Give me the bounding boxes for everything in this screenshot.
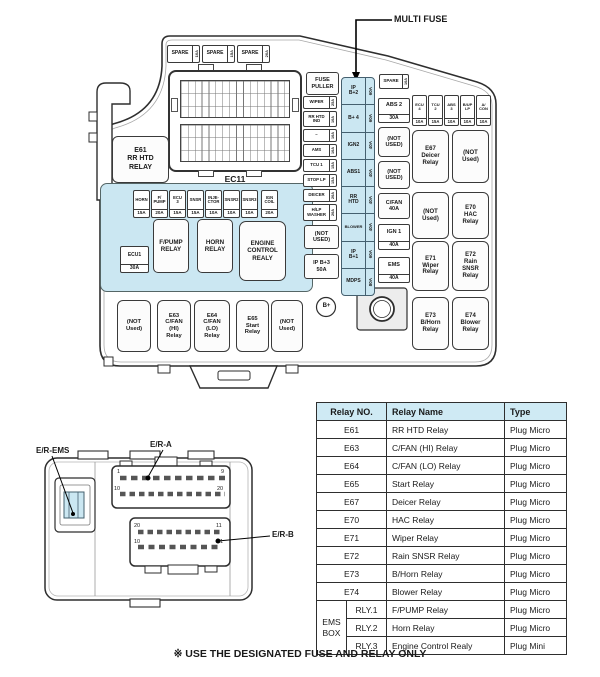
fuse-injector: INJE- CTOR 10A — [205, 190, 222, 218]
table-row: E67Deicer RelayPlug Micro — [317, 493, 567, 511]
table-row: E70HAC RelayPlug Micro — [317, 511, 567, 529]
table-row-ems-1: EMS BOX RLY.1F/PUMP RelayPlug Micro — [317, 601, 567, 619]
relay-e65-start: E65 Start Relay — [236, 300, 269, 352]
fuse-ign-coil: IGN COIL 20A — [261, 190, 278, 218]
fuse-bup-lp: B/UP LP 10A — [460, 95, 475, 126]
fuse-not-used-left: (NOT USED) — [304, 225, 339, 249]
multi-fuse-b4: B+ 460A — [342, 105, 374, 132]
fuse-abs3: ABS 3 10A — [444, 95, 459, 126]
relay-e74-blower: E74 Blower Relay — [452, 297, 489, 350]
b-plus-terminal-label: B+ — [317, 303, 336, 309]
fuse-acon: A/ CON 10A — [476, 95, 491, 126]
col-relay-name: Relay Name — [387, 403, 505, 421]
relay-table: Relay NO. Relay Name Type E61RR HTD Rela… — [316, 402, 567, 655]
fuse-fpump: F/ PUMP 20A — [151, 190, 168, 218]
table-row: E72Rain SNSR RelayPlug Micro — [317, 547, 567, 565]
table-row: E63C/FAN (HI) RelayPlug Micro — [317, 439, 567, 457]
fuse-not-used-mid-2: (NOT USED) — [378, 161, 410, 189]
multi-fuse-rr-htd: RR HTD40A — [342, 187, 374, 214]
table-row: E65Start RelayPlug Micro — [317, 475, 567, 493]
spare-fuse-3: SPARE 20A — [237, 45, 270, 63]
fuse-spare-mid: SPARE 10A — [379, 74, 409, 89]
fuse-abs2: ABS 2 30A — [378, 98, 410, 123]
relay-e70-hac: E70 HAC Relay — [452, 192, 489, 239]
fuse-ems: EMS 40A — [378, 257, 410, 283]
footer-note: ※ USE THE DESIGNATED FUSE AND RELAY ONLY — [0, 648, 600, 660]
er-ems-label: E/R-EMS — [36, 446, 69, 455]
fuse-hlp-washer: H/LP WASHER 20A — [303, 204, 337, 221]
fuse-horn: HORN 15A — [133, 190, 150, 218]
relay-not-used-bottom-2: (NOT Used) — [271, 300, 303, 352]
er-b-pin-20: 20 — [134, 524, 140, 530]
table-row: E64C/FAN (LO) RelayPlug Micro — [317, 457, 567, 475]
table-row-ems-2: RLY.2Horn RelayPlug Micro — [317, 619, 567, 637]
er-a-pin-9: 9 — [221, 470, 224, 476]
er-a-label: E/R-A — [150, 440, 172, 449]
fuse-tcu2: TCU 2 15A — [428, 95, 443, 126]
fuse-ecu3: ECU 3 15A — [169, 190, 186, 218]
fuse-tcu1: TCU 1 15A — [303, 159, 337, 172]
fuse-puller: FUSE PULLER — [306, 72, 339, 95]
table-row: E61RR HTD RelayPlug Micro — [317, 421, 567, 439]
ec11-pin-block-lower — [180, 124, 290, 162]
fuse-ams: AMS 10A — [303, 144, 337, 157]
fuse-stop-lp: STOP LP 15A — [303, 174, 337, 187]
er-a-connector — [112, 466, 230, 508]
er-a-pin-1: 1 — [117, 470, 120, 476]
relay-fpump: F/PUMP RELAY — [153, 219, 189, 273]
relay-e61-rr-htd: E61 RR HTD RELAY — [112, 136, 169, 183]
spare-fuse-2: SPARE 15A — [202, 45, 235, 63]
multi-fuse-blower: BLOWER40A — [342, 214, 374, 241]
fuse-snsr: SNSR 15A — [187, 190, 204, 218]
fuse-ecu1: ECU1 30A — [120, 246, 149, 273]
multi-fuse-ip-b2: IP B+260A — [342, 78, 374, 105]
fuse-ip-b3: IP B+3 50A — [304, 254, 339, 279]
relay-e67-deicer: E67 Deicer Relay — [412, 130, 449, 183]
ems-box-group-cell: EMS BOX — [317, 601, 347, 655]
multi-fuse-strip: IP B+260A B+ 460A IGN240A ABS140A RR HTD… — [341, 77, 375, 296]
fuse-ign1: IGN 1 40A — [378, 224, 410, 250]
table-row: E71Wiper RelayPlug Micro — [317, 529, 567, 547]
fuse-relay-diagram-page: { "colors": {"highlight": "#cbe7f2", "ta… — [0, 0, 600, 677]
relay-e71-wiper: E71 Wiper Relay — [412, 241, 449, 291]
fuse-not-used-mid-1: (NOT USED) — [378, 127, 410, 157]
relay-engine-control: ENGINE CONTROL REALY — [239, 221, 286, 281]
relay-not-used-bottom-1: (NOT Used) — [117, 300, 151, 352]
fuse-ecu4: ECU 4 10A — [412, 95, 427, 126]
relay-e73-bhorn: E73 B/Horn Relay — [412, 297, 449, 350]
fuse-wiper: WIPER 25A — [303, 96, 337, 109]
er-a-pin-20: 20 — [217, 487, 223, 493]
multi-fuse-ign2: IGN240A — [342, 133, 374, 160]
relay-e64-cfan-lo: E64 C/FAN (LO) Relay — [194, 300, 230, 352]
er-b-pin-11: 11 — [216, 524, 222, 530]
ec11-latch-left — [171, 98, 178, 112]
multi-fuse-ip-b1: IP B+160A — [342, 242, 374, 269]
table-row: E74Blower RelayPlug Micro — [317, 583, 567, 601]
ec11-pin-block-upper — [180, 80, 290, 118]
relay-table-header: Relay NO. Relay Name Type — [317, 403, 567, 421]
fuse-snsr3: SNSR3 10A — [241, 190, 258, 218]
er-b-pin-1: 1 — [220, 540, 223, 546]
multi-fuse-callout-label: MULTI FUSE — [394, 14, 447, 24]
fuse-snsr2: SNSR2 10A — [223, 190, 240, 218]
fuse-dash: – 10A — [303, 129, 337, 142]
er-b-pin-10: 10 — [134, 540, 140, 546]
relay-not-used-grid-2: (NOT Used) — [412, 192, 449, 239]
er-a-pin-10: 10 — [114, 487, 120, 493]
relay-e63-cfan-hi: E63 C/FAN (HI) Relay — [157, 300, 191, 352]
ec11-latch-right — [292, 98, 299, 112]
col-type: Type — [505, 403, 567, 421]
col-relay-no: Relay NO. — [317, 403, 387, 421]
multi-fuse-mdps: MDPS80A — [342, 269, 374, 295]
fuse-rr-htd-ind: RR HTD IND 10A — [303, 111, 337, 127]
er-b-connector — [130, 518, 230, 566]
er-b-label: E/R-B — [272, 530, 294, 539]
relay-not-used-grid-1: (NOT Used) — [452, 130, 489, 183]
relay-e72-rain-snsr: E72 Rain SNSR Relay — [452, 241, 489, 291]
fuse-deicer: DEICER 20A — [303, 189, 337, 202]
fuse-cfan: C/FAN 40A — [378, 193, 410, 219]
multi-fuse-abs1: ABS140A — [342, 160, 374, 187]
table-row: E73B/Horn RelayPlug Micro — [317, 565, 567, 583]
spare-fuse-1: SPARE 10A — [167, 45, 200, 63]
relay-horn: HORN RELAY — [197, 219, 233, 273]
